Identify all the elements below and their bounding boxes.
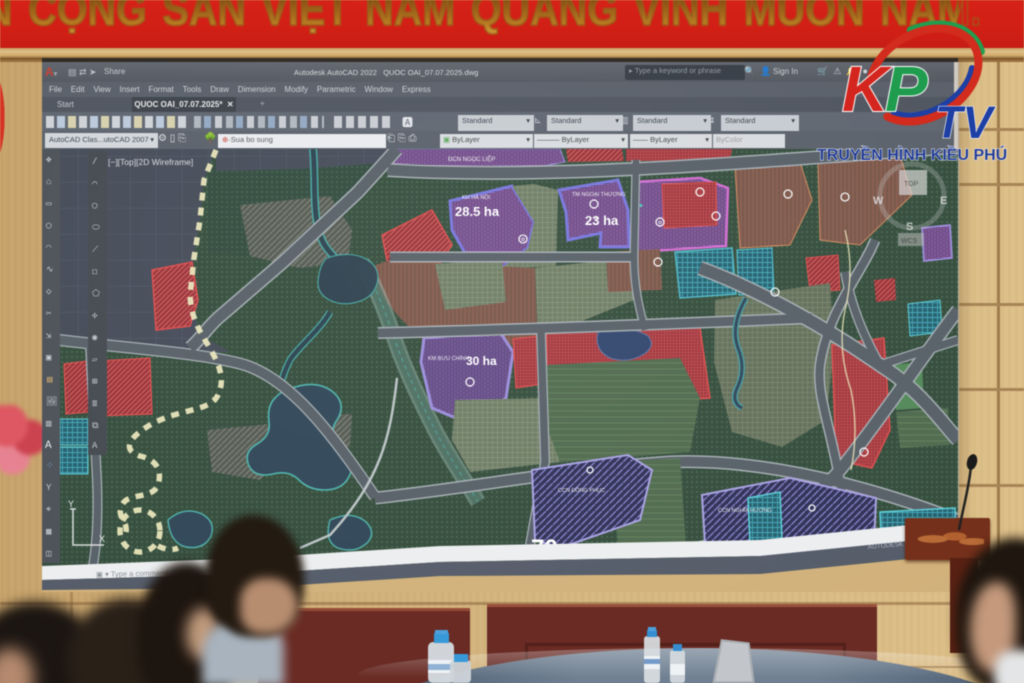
- svg-text:✥: ✥: [46, 155, 52, 165]
- svg-text:X: X: [99, 534, 105, 544]
- svg-text:30 ha: 30 ha: [466, 354, 497, 368]
- svg-text:⇲: ⇲: [46, 331, 51, 341]
- svg-text:ĐCN NGỌC LIỆP: ĐCN NGỌC LIỆP: [448, 155, 495, 163]
- svg-text:✿: ✿: [521, 237, 525, 243]
- svg-text:▦: ▦: [46, 527, 52, 537]
- svg-text:KM BƯU CHÍNH: KM BƯU CHÍNH: [428, 355, 469, 362]
- svg-text:TOP: TOP: [904, 181, 919, 188]
- svg-text:⧉: ⧉: [92, 421, 99, 431]
- svg-text:✂: ✂: [46, 309, 52, 319]
- svg-text:⬭: ⬭: [92, 223, 100, 233]
- svg-text:A: A: [45, 440, 52, 452]
- svg-text:✦: ✦: [638, 202, 644, 210]
- svg-text:⌖: ⌖: [46, 505, 51, 515]
- svg-text:23 ha: 23 ha: [585, 213, 619, 228]
- svg-text:✿: ✿: [658, 220, 662, 226]
- svg-text:◫: ◫: [46, 549, 52, 559]
- svg-text:▥: ▥: [46, 419, 52, 429]
- svg-text:S: S: [906, 221, 913, 233]
- svg-text:🖼: 🖼: [46, 396, 57, 407]
- svg-text:/: /: [92, 157, 97, 167]
- svg-text:Y: Y: [46, 483, 52, 493]
- svg-text:≣: ≣: [92, 399, 98, 409]
- svg-text:◻: ◻: [92, 267, 97, 277]
- svg-text:A: A: [92, 441, 98, 451]
- svg-text:CCN ĐỒNG PHỤC: CCN ĐỒNG PHỤC: [558, 487, 605, 494]
- svg-text:[−][Top][2D Wireframe]: [−][Top][2D Wireframe]: [108, 157, 193, 167]
- svg-text:◯: ◯: [92, 201, 98, 211]
- svg-text:W: W: [873, 195, 884, 207]
- svg-text:⊞: ⊞: [92, 377, 97, 387]
- svg-text:⬠: ⬠: [92, 289, 100, 299]
- svg-text:⁘: ⁘: [46, 461, 54, 471]
- svg-text:CCN NGHĨA HƯƠNG: CCN NGHĨA HƯƠNG: [718, 507, 772, 514]
- svg-text:▭: ▭: [46, 199, 52, 209]
- svg-text:▤: ▤: [47, 375, 53, 385]
- svg-text:E: E: [940, 195, 947, 207]
- svg-text:WCS: WCS: [901, 238, 918, 245]
- svg-text:◉: ◉: [92, 333, 98, 343]
- svg-text:◠: ◠: [46, 243, 52, 253]
- svg-text:KH HÀ NỘI: KH HÀ NỘI: [462, 194, 491, 201]
- svg-text:TM NGOẠI THƯƠNG: TM NGOẠI THƯƠNG: [572, 192, 626, 198]
- svg-text:∿: ∿: [46, 265, 54, 275]
- svg-text:28.5 ha: 28.5 ha: [455, 204, 500, 219]
- svg-text:⌂: ⌂: [46, 177, 51, 187]
- svg-text:▱: ▱: [92, 355, 98, 365]
- svg-text:◯: ◯: [46, 221, 52, 231]
- svg-text:P: P: [885, 53, 928, 125]
- svg-text:TV: TV: [935, 97, 996, 148]
- svg-text:▣: ▣: [46, 353, 52, 363]
- svg-text:TRUYỀN HÌNH KIỀU PHÚ: TRUYỀN HÌNH KIỀU PHÚ: [817, 145, 1007, 164]
- svg-text:Y: Y: [68, 499, 74, 509]
- svg-text:✣: ✣: [92, 311, 98, 321]
- svg-text:◇: ◇: [46, 287, 52, 297]
- svg-text:⌒: ⌒: [92, 179, 98, 189]
- svg-text:⟋: ⟋: [92, 245, 99, 255]
- svg-text:✿: ✿: [594, 217, 598, 223]
